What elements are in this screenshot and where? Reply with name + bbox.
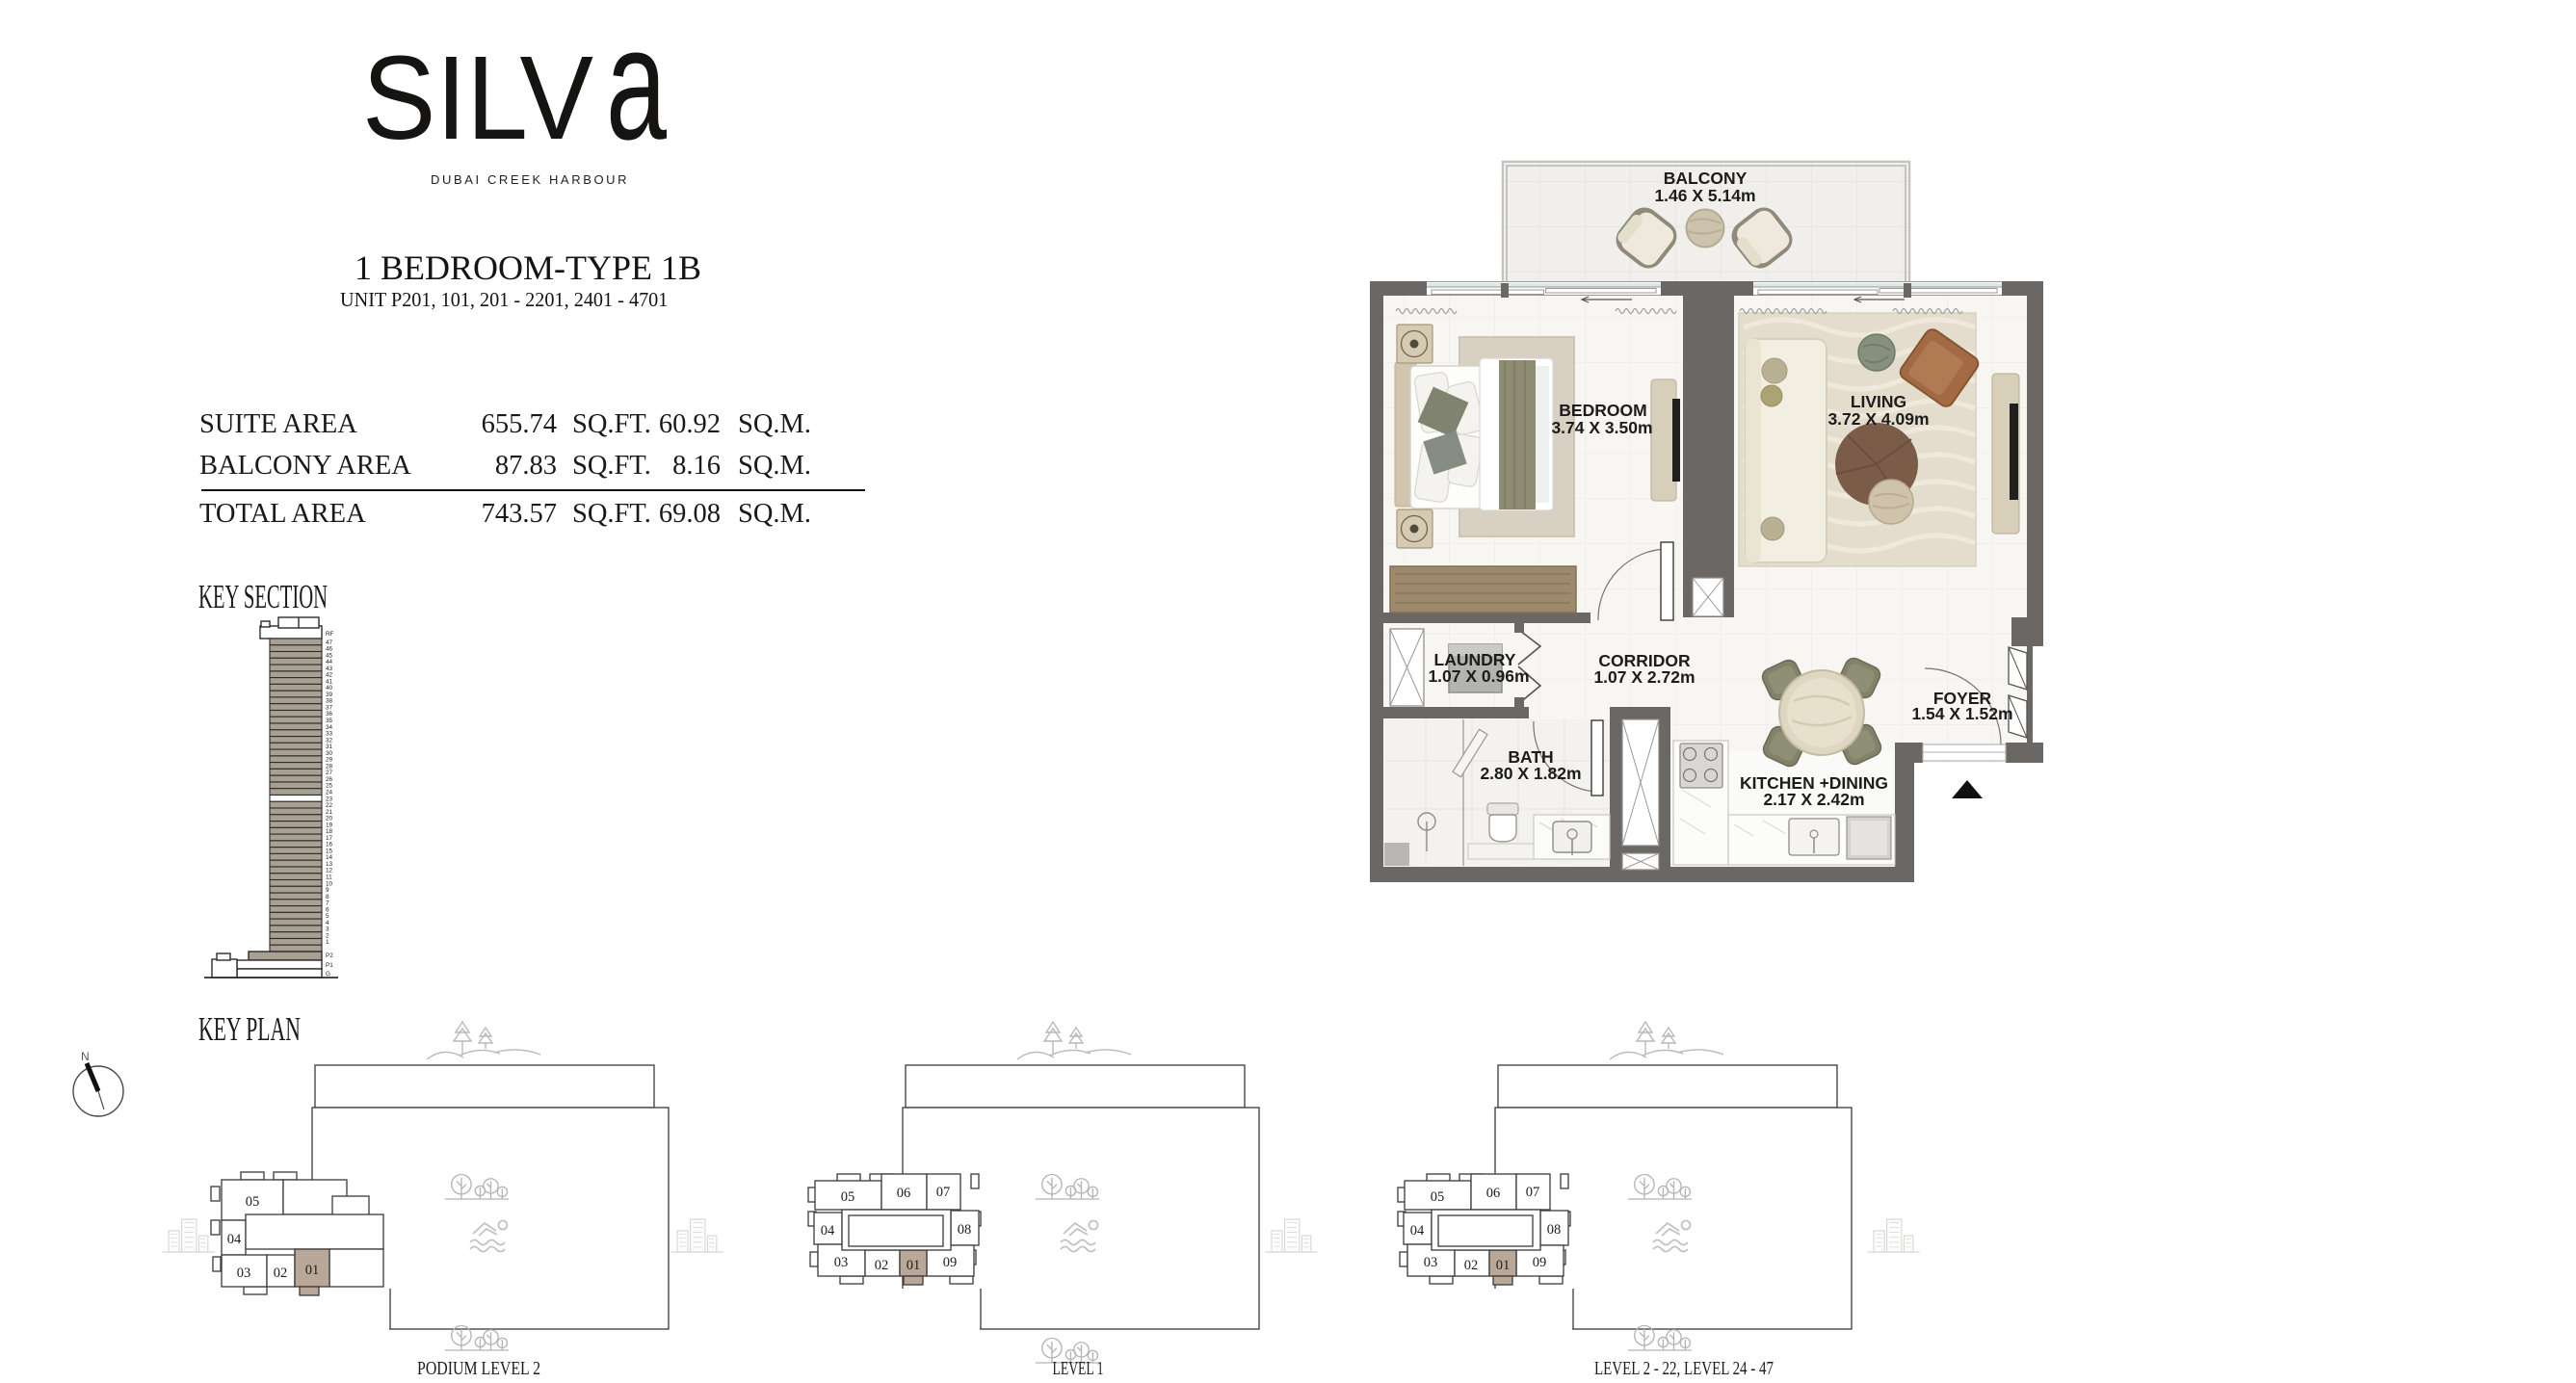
svg-text:BEDROOM: BEDROOM [1559,401,1646,420]
svg-text:2.80 X 1.82m: 2.80 X 1.82m [1480,764,1581,783]
svg-text:1.07 X 2.72m: 1.07 X 2.72m [1593,667,1695,687]
svg-text:BALCONY: BALCONY [1664,169,1748,188]
svg-text:1.54 X 1.52m: 1.54 X 1.52m [1911,704,2012,723]
svg-text:3.74 X 3.50m: 3.74 X 3.50m [1551,418,1652,437]
svg-text:LIVING: LIVING [1851,392,1906,411]
svg-text:2.17 X 2.42m: 2.17 X 2.42m [1763,790,1864,809]
svg-text:1.46 X 5.14m: 1.46 X 5.14m [1654,186,1755,205]
svg-text:1.07 X 0.96m: 1.07 X 0.96m [1428,666,1529,686]
svg-text:3.72 X 4.09m: 3.72 X 4.09m [1827,409,1929,429]
